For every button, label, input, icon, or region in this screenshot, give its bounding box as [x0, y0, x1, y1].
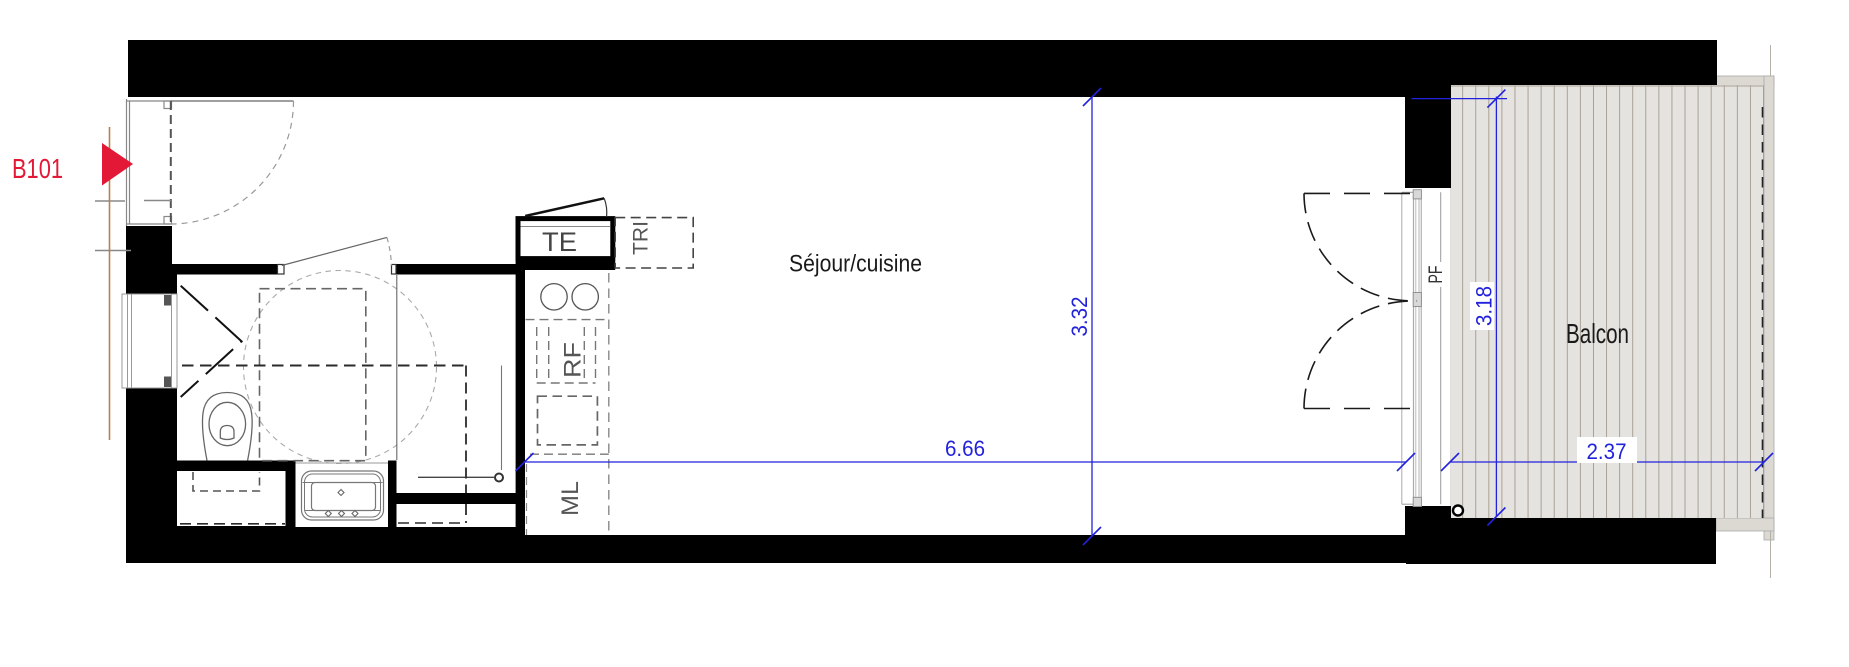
svg-text:Balcon: Balcon: [1566, 318, 1629, 349]
svg-text:6.66: 6.66: [945, 436, 985, 461]
svg-text:TE: TE: [542, 227, 577, 257]
svg-text:PF: PF: [1426, 266, 1447, 284]
svg-text:RF: RF: [560, 342, 587, 378]
svg-text:TRI: TRI: [630, 221, 653, 255]
svg-text:3.18: 3.18: [1472, 286, 1497, 326]
svg-text:B101: B101: [12, 153, 63, 184]
svg-text:Séjour/cuisine: Séjour/cuisine: [789, 251, 922, 278]
svg-text:2.37: 2.37: [1587, 439, 1627, 464]
svg-text:3.32: 3.32: [1067, 297, 1092, 337]
svg-text:ML: ML: [557, 481, 584, 516]
